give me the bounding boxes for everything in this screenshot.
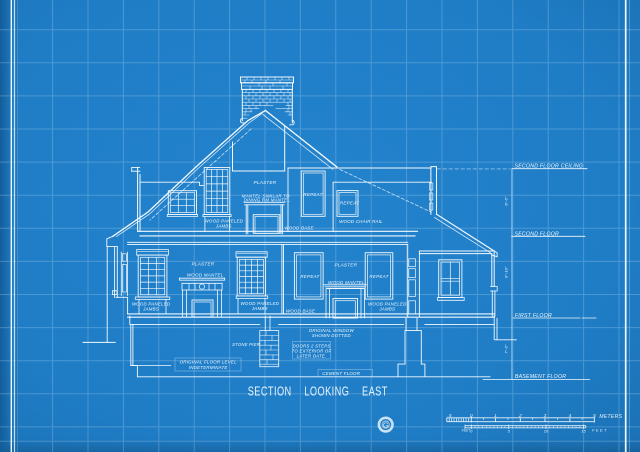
svg-text:G: G xyxy=(383,421,389,430)
svg-text:PLASTER: PLASTER xyxy=(334,263,357,268)
svg-text:LATER DATE.: LATER DATE. xyxy=(297,354,327,359)
svg-text:0: 0 xyxy=(470,413,473,419)
svg-text:FIRST FLOOR: FIRST FLOOR xyxy=(515,313,552,319)
svg-text:BASEMENT FLOOR: BASEMENT FLOOR xyxy=(515,374,566,380)
svg-text:STONE PIER: STONE PIER xyxy=(232,342,260,347)
svg-text:1: 1 xyxy=(494,413,497,419)
svg-text:REPEAT: REPEAT xyxy=(300,274,320,279)
svg-text:SECOND FLOOR: SECOND FLOOR xyxy=(515,231,560,237)
svg-text:DINING RM MANTEL: DINING RM MANTEL xyxy=(244,198,291,203)
svg-text:8'-6": 8'-6" xyxy=(504,196,509,206)
svg-text:METERS: METERS xyxy=(599,414,622,420)
svg-text:PLASTER: PLASTER xyxy=(254,180,277,185)
svg-text:JAMBS: JAMBS xyxy=(142,307,159,312)
svg-text:SECTION LOOKING EAST: SECTION LOOKING EAST xyxy=(248,385,388,399)
svg-text:JAMBS: JAMBS xyxy=(378,306,395,311)
svg-text:.5: .5 xyxy=(447,413,451,419)
svg-text:JAMBS: JAMBS xyxy=(251,306,268,311)
svg-text:2: 2 xyxy=(518,413,522,419)
svg-text:REPEAT: REPEAT xyxy=(303,192,323,197)
svg-text:3: 3 xyxy=(544,413,547,419)
svg-text:WOOD BASE: WOOD BASE xyxy=(286,309,315,314)
svg-text:CEMENT FLOOR: CEMENT FLOOR xyxy=(322,371,360,376)
svg-text:FEET: FEET xyxy=(592,428,608,433)
svg-text:5: 5 xyxy=(593,413,596,419)
svg-text:WOOD BASE: WOOD BASE xyxy=(284,225,313,230)
svg-text:15: 15 xyxy=(581,428,586,433)
svg-text:WOOD MANTEL: WOOD MANTEL xyxy=(187,273,224,278)
svg-text:7'-6": 7'-6" xyxy=(504,344,509,354)
svg-text:REPEAT: REPEAT xyxy=(369,274,389,279)
svg-text:10: 10 xyxy=(544,428,549,433)
svg-text:WOOD MANTEL: WOOD MANTEL xyxy=(328,280,365,285)
svg-text:REPEAT: REPEAT xyxy=(340,201,360,206)
svg-text:WOOD CHAIR RAIL: WOOD CHAIR RAIL xyxy=(339,219,383,224)
svg-text:8'-10": 8'-10" xyxy=(504,266,509,278)
svg-text:SHOWN DOTTED: SHOWN DOTTED xyxy=(312,333,352,338)
svg-text:WOOD PANELED: WOOD PANELED xyxy=(205,218,244,223)
svg-text:INDETERMINATE: INDETERMINATE xyxy=(189,365,228,370)
svg-text:PLASTER: PLASTER xyxy=(192,262,215,267)
svg-text:SECOND FLOOR CEILING: SECOND FLOOR CEILING xyxy=(515,164,584,170)
svg-text:JAMBS: JAMBS xyxy=(215,224,232,229)
svg-text:4: 4 xyxy=(569,413,572,419)
